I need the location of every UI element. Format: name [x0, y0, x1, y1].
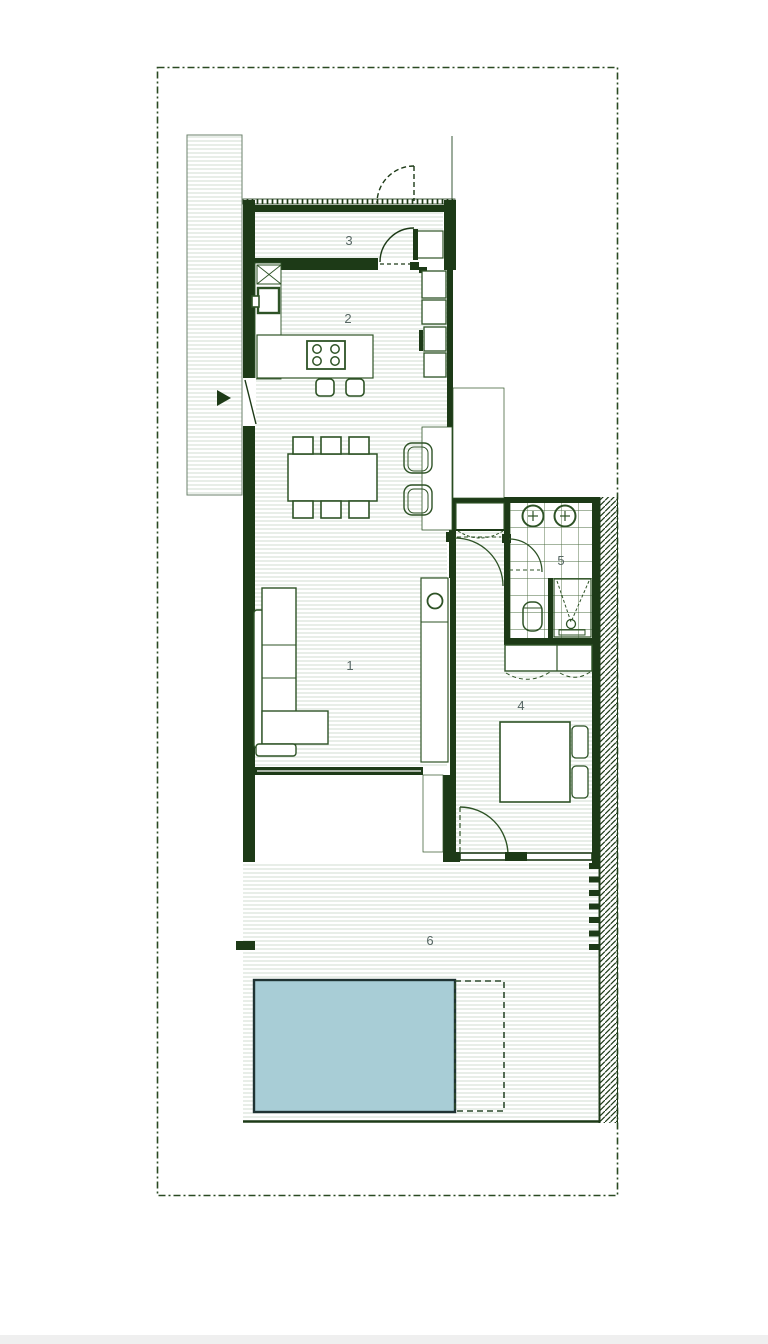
top-wall-hatched	[243, 199, 455, 212]
pillow	[572, 726, 588, 758]
room-label-bedroom: 4	[517, 698, 524, 713]
room-label-living: 1	[346, 658, 353, 673]
floor-plan-canvas: 1 2 3 4 5 6	[0, 0, 768, 1344]
dining-table	[288, 454, 377, 501]
floor-plan-page: 1 2 3 4 5 6	[0, 0, 768, 1344]
footer-bar	[0, 1335, 768, 1344]
sliding-glass-door-south	[255, 767, 423, 775]
kitchen-appliance	[257, 265, 281, 284]
room-label-kitchen: 2	[344, 311, 351, 326]
room-label-terrace: 6	[426, 933, 433, 948]
fireplace-unit	[421, 578, 448, 762]
vestibule-floor	[456, 530, 504, 645]
room-label-bathroom: 5	[557, 553, 564, 568]
bedroom-south-window	[460, 852, 592, 861]
swimming-pool	[254, 980, 455, 1112]
room3-closet	[413, 229, 443, 260]
driveway-strip	[187, 135, 242, 495]
terrace-wall-stub	[236, 941, 255, 950]
cooktop	[307, 341, 345, 369]
room-label-entry: 3	[345, 233, 352, 248]
door-pocket	[423, 775, 443, 852]
pillow	[572, 766, 588, 798]
